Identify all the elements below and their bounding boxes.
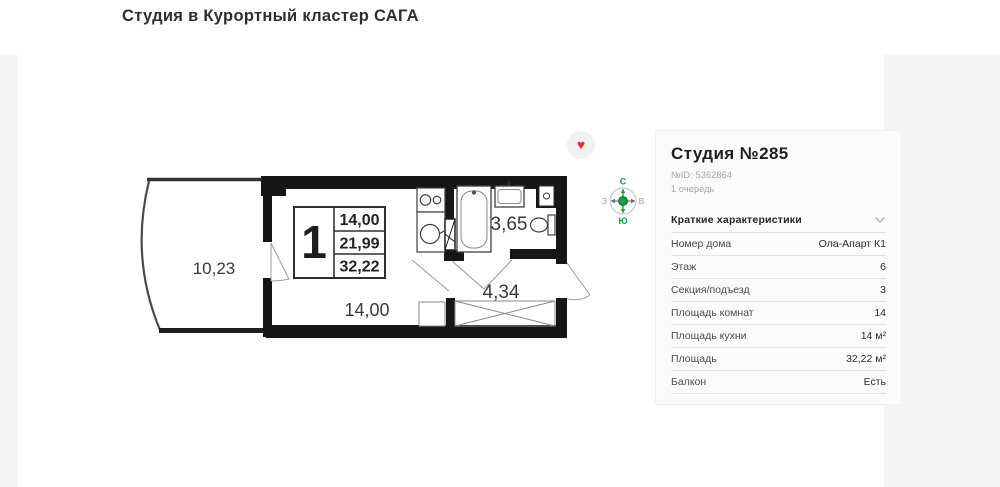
hallway-area-label: 4,34 — [483, 282, 520, 303]
characteristics-table: Номер дома Ола-Апарт К1 Этаж 6 Секция/по… — [671, 232, 886, 394]
compass-south-label: Ю — [618, 216, 627, 226]
page: Студия в Курортный кластер САГА — [0, 0, 1000, 487]
vent-shaft — [445, 219, 455, 250]
bathtub — [457, 186, 491, 252]
compass-east-label: В — [639, 196, 645, 206]
favorite-button[interactable]: ♥ — [567, 131, 595, 159]
cabinet — [419, 302, 445, 326]
row-label: Номер дома — [671, 238, 731, 250]
characteristic-row: Балкон Есть — [671, 370, 886, 393]
floor-plan: 10,23 14,00 3,65 4,34 1 14,00 21,99 32,2… — [118, 155, 608, 345]
plan-info-box: 1 14,00 21,99 32,22 — [294, 207, 385, 278]
page-title: Студия в Курортный кластер САГА — [122, 7, 419, 26]
characteristic-row: Этаж 6 — [671, 255, 886, 278]
characteristic-row: Площадь 32,22 м² — [671, 347, 886, 370]
top-bar: Студия в Курортный кластер САГА — [0, 0, 1000, 55]
row-label: Площадь комнат — [671, 307, 754, 319]
characteristics-title: Краткие характеристики — [671, 214, 802, 226]
row-value: 3 — [880, 284, 886, 296]
bathroom-area-label: 3,65 — [491, 214, 528, 235]
kitchen-stove — [417, 188, 445, 212]
characteristic-row: Номер дома Ола-Апарт К1 — [671, 232, 886, 255]
compass-icon: С Ю З В — [598, 174, 648, 226]
unit-id: №ID: 5362864 — [671, 170, 886, 180]
row-label: Площадь кухни — [671, 330, 747, 342]
row-value: Есть — [864, 376, 886, 388]
toilet — [531, 215, 556, 235]
heart-icon: ♥ — [577, 138, 585, 152]
kitchen-sink — [417, 212, 445, 252]
row-label: Балкон — [671, 376, 706, 388]
rooms-count: 1 — [301, 216, 327, 268]
wardrobe — [455, 301, 555, 326]
characteristic-row: Площадь комнат 14 — [671, 301, 886, 324]
row-value: Ола-Апарт К1 — [819, 238, 886, 250]
characteristic-row: Секция/подъезд 3 — [671, 278, 886, 301]
compass-north-label: С — [620, 177, 627, 187]
unit-details-panel: Студия №285 №ID: 5362864 1 очередь Кратк… — [655, 130, 902, 405]
info-row-3: 32,22 — [339, 259, 379, 276]
content-card: 10,23 14,00 3,65 4,34 1 14,00 21,99 32,2… — [18, 55, 884, 487]
row-value: 32,22 м² — [846, 353, 886, 365]
unit-queue: 1 очередь — [671, 184, 886, 194]
characteristic-row: Площадь кухни 14 м² — [671, 324, 886, 347]
info-row-2: 21,99 — [339, 236, 379, 253]
balcony-outline — [142, 180, 267, 331]
unit-title: Студия №285 — [671, 144, 886, 164]
row-value: 6 — [880, 261, 886, 273]
chevron-down-icon[interactable] — [874, 216, 886, 224]
row-label: Площадь — [671, 353, 717, 365]
utility-niche — [539, 186, 554, 206]
row-label: Этаж — [671, 261, 696, 273]
balcony-area-label: 10,23 — [193, 259, 236, 278]
info-row-1: 14,00 — [339, 212, 379, 229]
row-value: 14 м² — [861, 330, 886, 342]
room-area-label: 14,00 — [344, 300, 389, 320]
row-value: 14 — [874, 307, 886, 319]
characteristics-header[interactable]: Краткие характеристики — [671, 208, 886, 232]
compass-west-label: З — [602, 196, 607, 206]
row-label: Секция/подъезд — [671, 284, 750, 296]
